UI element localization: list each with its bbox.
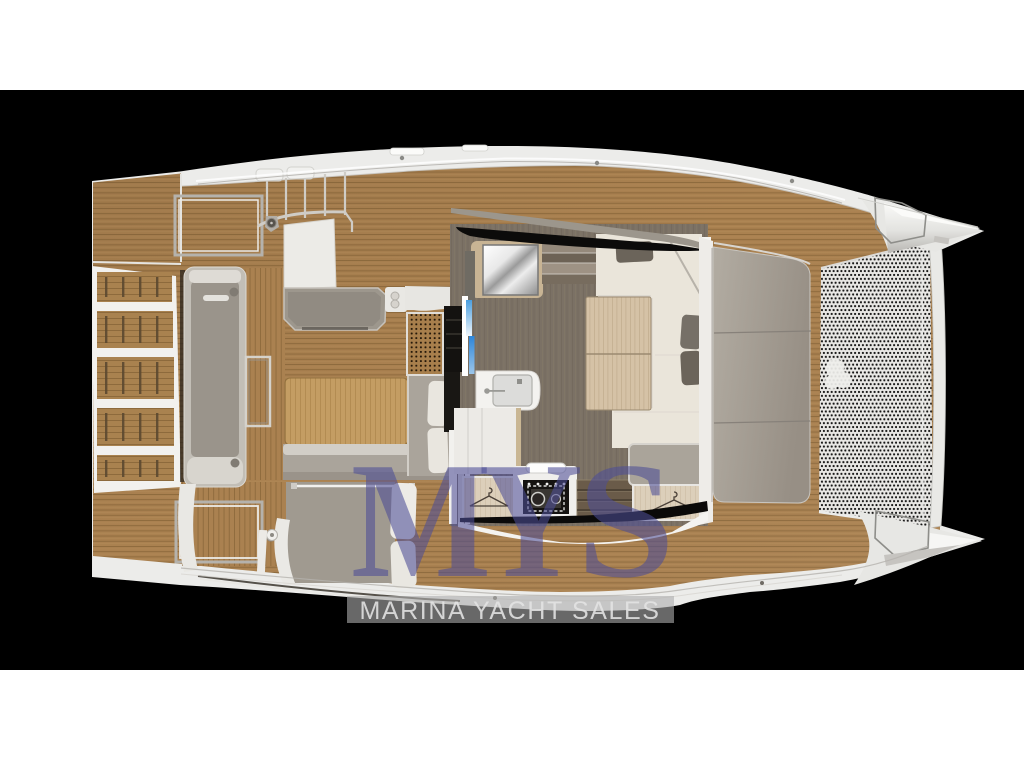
svg-text:S: S bbox=[577, 428, 675, 611]
svg-text:M: M bbox=[351, 429, 491, 612]
svg-text:Y: Y bbox=[479, 428, 583, 612]
svg-text:MARINA YACHT SALES: MARINA YACHT SALES bbox=[359, 597, 660, 625]
